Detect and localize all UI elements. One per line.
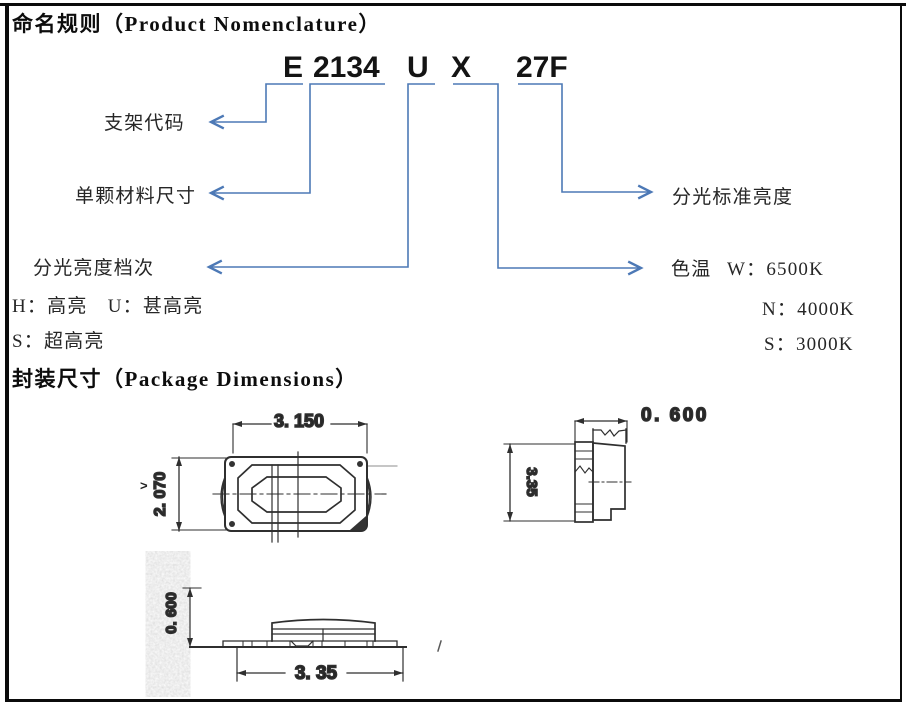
datasheet-page: 命名规则（Product Nomenclature） 封装尺寸（Package …	[0, 0, 909, 709]
code-part-colortemp: X	[451, 54, 471, 82]
connector-brightness-grade	[209, 84, 435, 267]
connector-bracket-code	[211, 84, 303, 122]
label-brightness-legend-1: H：高亮 U：甚高亮	[12, 291, 203, 318]
scan-tick	[438, 641, 441, 651]
label-color-temp-n: N：4000K	[762, 294, 855, 321]
label-color-temp: 色温	[671, 254, 711, 281]
pointer-mark: >	[140, 478, 148, 493]
border-left	[5, 3, 9, 702]
section-title-nomenclature: 命名规则（Product Nomenclature）	[12, 8, 381, 38]
connector-material-size	[211, 84, 385, 193]
code-part-bracket: E	[283, 54, 303, 82]
dim-front-height: 0. 600	[163, 592, 180, 634]
border-right	[900, 4, 902, 702]
code-part-size: 2134	[313, 54, 380, 82]
label-bracket-code: 支架代码	[104, 108, 185, 135]
label-standard-brightness: 分光标准亮度	[672, 182, 793, 209]
label-color-temp-s: S：3000K	[764, 329, 854, 356]
connector-standard-brightness	[518, 84, 651, 192]
code-part-brightness: 27F	[516, 54, 568, 82]
label-brightness-legend-2: S：超高亮	[12, 326, 105, 353]
label-color-temp-w: W：6500K	[727, 254, 824, 281]
package-front-view: 0. 600 3. 35	[152, 558, 441, 690]
border-top	[0, 3, 906, 6]
nomenclature-connectors	[209, 84, 651, 268]
label-material-size: 单颗材料尺寸	[75, 181, 196, 208]
scan-artifact-band	[152, 558, 184, 690]
package-top-view: 3. 150 2. 070 >	[140, 411, 397, 542]
code-part-grade: U	[407, 54, 429, 82]
border-bottom	[5, 699, 902, 702]
section-title-package-dimensions: 封装尺寸（Package Dimensions）	[12, 363, 358, 393]
connector-color-temp	[453, 84, 641, 268]
dim-top-width: 3. 150	[274, 411, 324, 431]
dim-top-height: 2. 070	[152, 472, 169, 517]
dim-side-width: 0. 600	[641, 405, 709, 426]
dim-side-height: 3.35	[523, 467, 540, 496]
package-side-view: 0. 600 3.35	[504, 405, 709, 522]
label-brightness-grade: 分光亮度档次	[33, 253, 154, 280]
dim-front-width: 3. 35	[295, 663, 338, 684]
polarity-mark	[350, 516, 366, 530]
